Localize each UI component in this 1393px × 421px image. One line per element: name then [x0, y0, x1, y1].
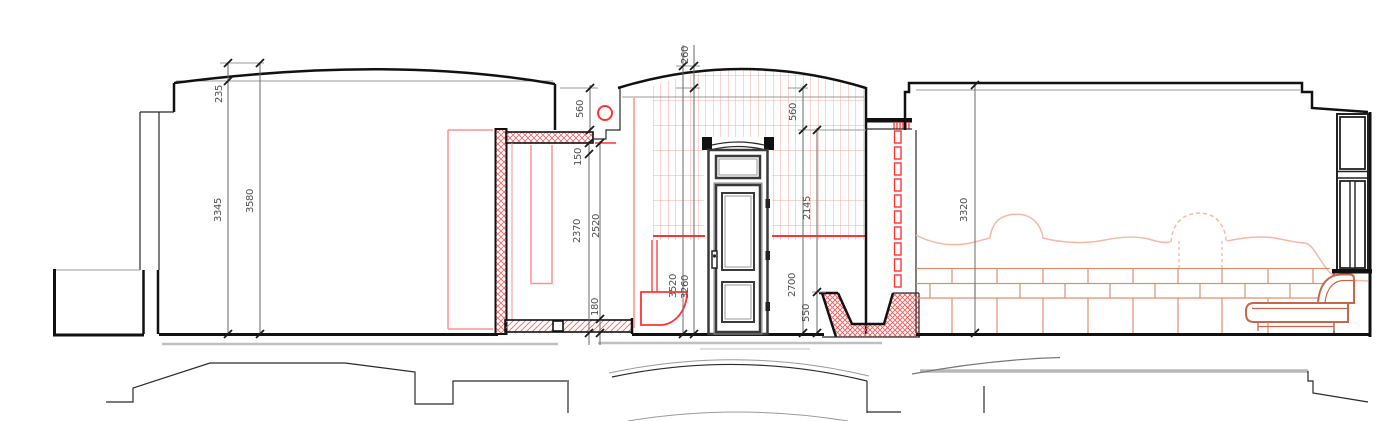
closet-ceiling-slab: [506, 132, 593, 143]
sofa-backrest: [1318, 275, 1354, 304]
trough-hatch: [822, 293, 919, 337]
dim-label-left-total-height: 3580: [245, 189, 256, 213]
floor-trough-basin: [819, 293, 920, 337]
dim-label-closet-total-height: 2520: [591, 214, 602, 238]
dim-label-vest-opening-height: 2145: [802, 196, 813, 220]
door-corbel-right: [764, 137, 774, 150]
left-ground-profile: [106, 363, 568, 413]
wainscot-block-grid: [916, 269, 1330, 334]
basin-pipes: [652, 240, 657, 292]
lintel-tile-stripes: [894, 122, 909, 129]
entrance-door: [702, 137, 774, 334]
dim-label-vest-wall-height: 2700: [787, 273, 798, 297]
wave-backdrop-line: [916, 214, 1170, 245]
dim-label-vest-total-height: 3520: [668, 274, 679, 298]
door-hinge-top: [766, 199, 771, 208]
annex-walls: [53, 269, 144, 336]
section-elevation-svg: 235 3345 3580 560 150 2370 2520 180 260 …: [0, 0, 1393, 421]
dim-label-left-roof-rise: 235: [214, 85, 225, 103]
elevation-drawing-canvas: 235 3345 3580 560 150 2370 2520 180 260 …: [0, 0, 1393, 421]
closet-duct-outline: [531, 145, 552, 284]
left-wall-lines: [140, 112, 174, 270]
closet-hatched-wall: [496, 129, 507, 334]
dim-label-dome-rise: 260: [680, 46, 691, 64]
dim-label-vest-parapet: 560: [788, 103, 799, 121]
door-handle: [712, 251, 717, 268]
sofa-base-lines: [1258, 322, 1334, 331]
left-opening-outline: [448, 130, 493, 329]
door-hinge-mid: [766, 251, 771, 260]
dim-label-closet-clear-height: 2370: [572, 219, 583, 243]
sofa-seat: [1246, 303, 1348, 322]
dashed-niche-sides: [1179, 241, 1222, 268]
lower-arch-line: [628, 412, 848, 421]
pipe-section-circle: [598, 106, 612, 120]
dim-label-vest-basin-height: 550: [801, 304, 812, 322]
floor-drain-box: [553, 321, 563, 331]
dim-label-closet-ceiling-slab: 150: [573, 148, 584, 166]
below-grade-profile: [106, 343, 1368, 421]
door-glass-upper: [722, 193, 754, 270]
dim-label-closet-parapet: 560: [575, 100, 586, 118]
dim-label-closet-floor-slab: 180: [590, 298, 601, 316]
vault-inner-arc: [612, 364, 901, 413]
closet-section: [496, 87, 633, 334]
dim-label-right-room-height: 3320: [959, 198, 970, 222]
door-glass-lower: [722, 282, 754, 322]
door-corbel-left: [702, 137, 712, 150]
door-hinge-bottom: [766, 302, 771, 311]
window-sill: [1332, 269, 1372, 274]
left-building-section: [53, 69, 555, 336]
tiled-pillar-strip: [895, 131, 902, 287]
annex-notch: [144, 270, 159, 334]
dim-label-vest-eave-height: 3260: [680, 275, 691, 299]
dim-label-left-wall-height: 3345: [213, 198, 224, 222]
right-ground-step: [1308, 371, 1368, 402]
door-knob-dot: [713, 254, 716, 257]
window-top-pane: [1340, 117, 1365, 169]
dashed-arch-niche: [1171, 213, 1226, 242]
closet-floor-slab: [505, 320, 632, 332]
window-mullion: [1350, 181, 1355, 268]
